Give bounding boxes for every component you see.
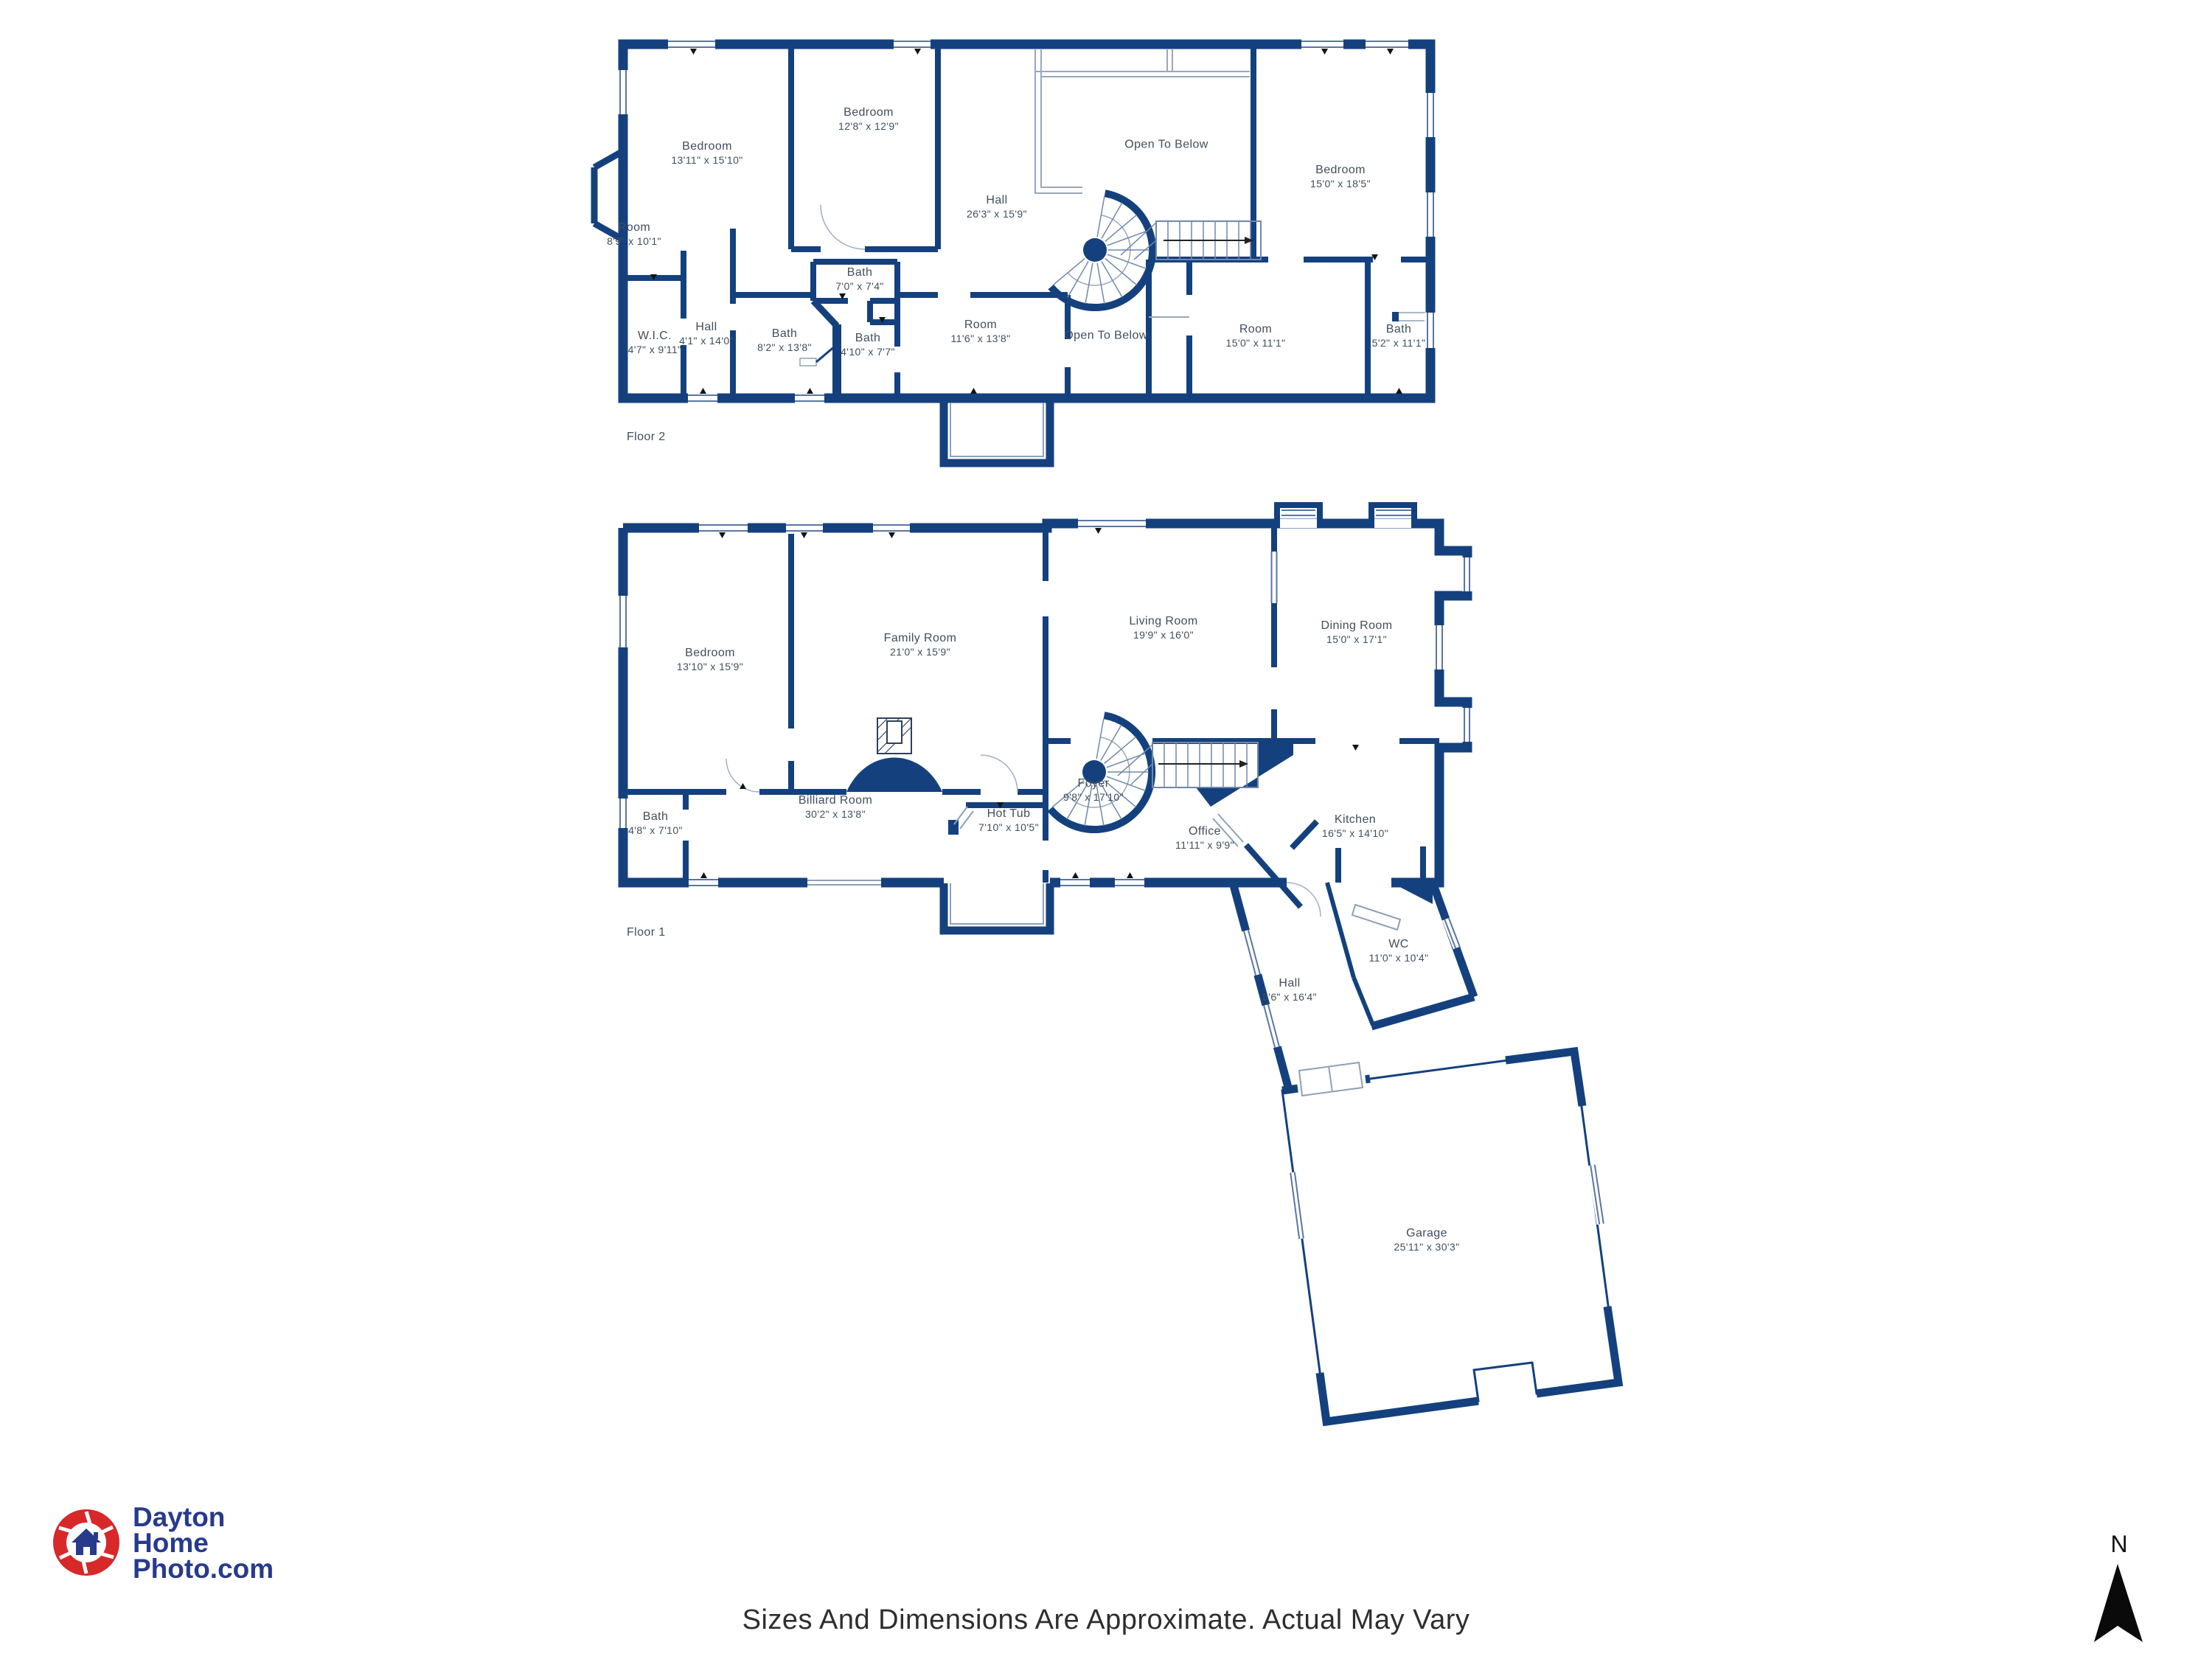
- logo-line2: Home: [133, 1530, 274, 1556]
- north-label: N: [2091, 1531, 2147, 1558]
- logo-line3: Photo.com: [133, 1556, 274, 1582]
- room-label: Hot Tub7'10" x 10'5": [978, 807, 1039, 834]
- dayton-home-photo-logo: Dayton Home Photo.com: [52, 1504, 274, 1582]
- page: { "floor2": { "caption": "Floor 2", "roo…: [0, 0, 2212, 1659]
- room-label: Dining Room15'0" x 17'1": [1321, 619, 1393, 646]
- room-name: Bedroom: [671, 140, 742, 153]
- floorplan-canvas: [0, 0, 2212, 1659]
- room-label: Hall5'6" x 16'4": [1262, 977, 1317, 1004]
- room-label: Bath7'0" x 7'4": [835, 266, 884, 293]
- disclaimer-text: Sizes And Dimensions Are Approximate. Ac…: [0, 1604, 2212, 1636]
- straight-stair-floor1: [1118, 742, 1258, 787]
- room-label: Bedroom15'0" x 18'5": [1310, 164, 1371, 190]
- logo-text: Dayton Home Photo.com: [133, 1504, 274, 1582]
- room-label: Bath4'10" x 7'7": [841, 332, 895, 358]
- floor2-windows: [617, 38, 1436, 404]
- room-label: Kitchen16'5" x 14'10": [1322, 813, 1388, 840]
- room-label: Room8'9" x 10'1": [607, 221, 661, 248]
- room-label: Bath4'8" x 7'10": [628, 810, 683, 837]
- room-label: Billiard Room30'2" x 13'8": [799, 794, 872, 821]
- room-label: Bath8'2" x 13'8": [757, 327, 812, 354]
- room-label: Bedroom13'11" x 15'10": [671, 140, 742, 167]
- room-label: W.I.C.4'7" x 9'11": [628, 330, 682, 356]
- room-label: Bath5'2" x 11'1": [1372, 323, 1426, 349]
- spiral-stair-floor1: [1050, 715, 1152, 829]
- room-label: Hall4'1" x 14'0": [679, 321, 734, 347]
- room-label: Family Room21'0" x 15'9": [884, 632, 957, 658]
- room-label: Foyer9'8" x 17'10": [1063, 777, 1124, 804]
- floor1-plan: [617, 505, 1472, 931]
- room-label: Bedroom12'8" x 12'9": [838, 106, 899, 133]
- room-label: WC11'0" x 10'4": [1369, 938, 1429, 964]
- room-label: Bedroom13'10" x 15'9": [677, 647, 743, 673]
- logo-line1: Dayton: [133, 1504, 274, 1530]
- room-label: Office11'11" x 9'9": [1175, 825, 1234, 852]
- floor1-caption: Floor 1: [627, 926, 666, 939]
- room-label: Hall26'3" x 15'9": [967, 194, 1027, 220]
- room-label: Living Room19'9" x 16'0": [1129, 615, 1197, 641]
- room-dims: 13'11" x 15'10": [671, 154, 742, 167]
- room-label: Room15'0" x 11'1": [1226, 323, 1286, 349]
- north-arrow-icon: [2091, 1559, 2147, 1646]
- straight-stair-floor2: [1121, 221, 1261, 260]
- floor2-plan: [594, 38, 1436, 463]
- room-label: Room11'6" x 13'8": [951, 319, 1011, 345]
- fireplace-icon: [846, 718, 942, 792]
- north-compass: N: [2091, 1531, 2147, 1650]
- room-label: Open To Below: [1124, 139, 1208, 151]
- room-label: Garage25'11" x 30'3": [1394, 1227, 1459, 1253]
- spiral-stair-floor2: [1051, 193, 1152, 307]
- floor2-caption: Floor 2: [627, 431, 666, 444]
- room-label: Open To Below: [1064, 330, 1147, 342]
- logo-aperture-icon: [52, 1504, 122, 1581]
